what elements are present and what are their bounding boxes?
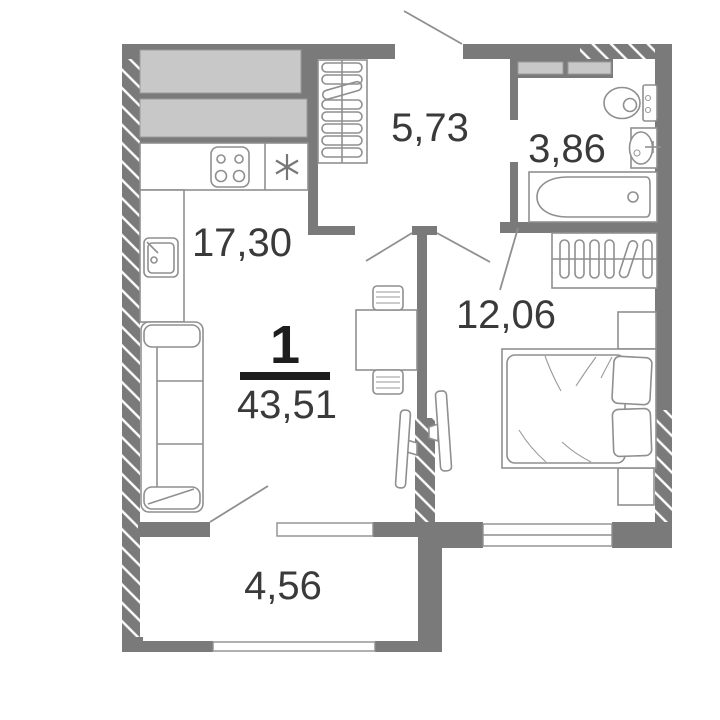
bathroom-shelf-icon bbox=[518, 62, 563, 74]
living-balcony-window bbox=[277, 523, 373, 536]
pillow-icon bbox=[612, 408, 652, 456]
total-area-label: 43,51 bbox=[237, 383, 337, 427]
top-wall-right bbox=[463, 44, 580, 59]
hallway-wall-cap-center bbox=[412, 226, 437, 235]
kitchen-lower-cabinet-icon bbox=[140, 99, 307, 137]
coat-closet-icon bbox=[318, 60, 367, 163]
floor-plan: 17,30 5,73 3,86 12,06 4,56 1 43,51 bbox=[0, 0, 720, 720]
hallway-zone bbox=[318, 60, 367, 163]
living-balcony-wall-right bbox=[373, 522, 418, 537]
unit-summary: 1 43,51 bbox=[237, 315, 337, 427]
chair-icon bbox=[373, 370, 403, 394]
kitchen-zone bbox=[140, 44, 310, 322]
bathroom-area-label: 3,86 bbox=[528, 127, 606, 171]
bedroom-bottom-wall-left bbox=[427, 522, 483, 548]
washbasin-icon bbox=[630, 128, 662, 168]
kitchen-living-area-label: 17,30 bbox=[192, 221, 292, 265]
living-bedroom-partition bbox=[417, 235, 427, 418]
bathroom-left-wall-lower bbox=[510, 162, 518, 222]
balcony-corner-wall bbox=[122, 637, 143, 652]
fraction-bar bbox=[240, 372, 330, 380]
bedroom-window bbox=[483, 524, 612, 546]
balcony-bottom-wall-left bbox=[140, 641, 213, 652]
bedroom-bottom-wall-right bbox=[612, 522, 672, 548]
balcony-window bbox=[213, 642, 375, 651]
bathroom-bottom-wall bbox=[500, 222, 657, 233]
balcony-area-label: 4,56 bbox=[244, 564, 322, 608]
entry-door-swing bbox=[404, 11, 462, 44]
wardrobe-hangers-icon bbox=[552, 233, 657, 288]
dining-table-icon bbox=[356, 310, 417, 370]
bathroom-door-swing bbox=[500, 228, 518, 290]
living-room-door-swing bbox=[366, 233, 412, 261]
left-exterior-wall bbox=[122, 44, 140, 637]
bathtub-icon bbox=[529, 172, 657, 222]
kitchen-sink-icon bbox=[144, 238, 178, 277]
balcony-bottom-wall-right bbox=[375, 641, 442, 652]
hallway-area-label: 5,73 bbox=[391, 106, 469, 150]
sofa-icon bbox=[141, 322, 203, 512]
bedroom-door-swing bbox=[437, 233, 490, 262]
living-balcony-wall-left bbox=[138, 522, 210, 537]
unit-rooms-count: 1 bbox=[270, 315, 300, 375]
bedroom-zone bbox=[429, 233, 657, 505]
floor-plan-page: 17,30 5,73 3,86 12,06 4,56 1 43,51 bbox=[0, 0, 720, 720]
tv-living-icon bbox=[395, 410, 417, 489]
pillow-icon bbox=[612, 356, 652, 405]
chair-icon bbox=[373, 286, 403, 310]
nightstand-top-icon bbox=[618, 312, 656, 349]
stove-icon bbox=[211, 147, 249, 187]
bottom-walls-and-windows bbox=[138, 522, 672, 652]
kitchen-upper-cabinet-icon bbox=[140, 50, 301, 93]
hallway-wall-cap-left bbox=[308, 226, 355, 235]
bedroom-area-label: 12,06 bbox=[456, 293, 556, 337]
balcony-door-swing bbox=[210, 486, 268, 522]
toilet-icon bbox=[604, 85, 657, 121]
washer-icon bbox=[568, 62, 611, 74]
double-bed-icon bbox=[502, 349, 656, 468]
nightstand-bottom-icon bbox=[618, 468, 654, 505]
